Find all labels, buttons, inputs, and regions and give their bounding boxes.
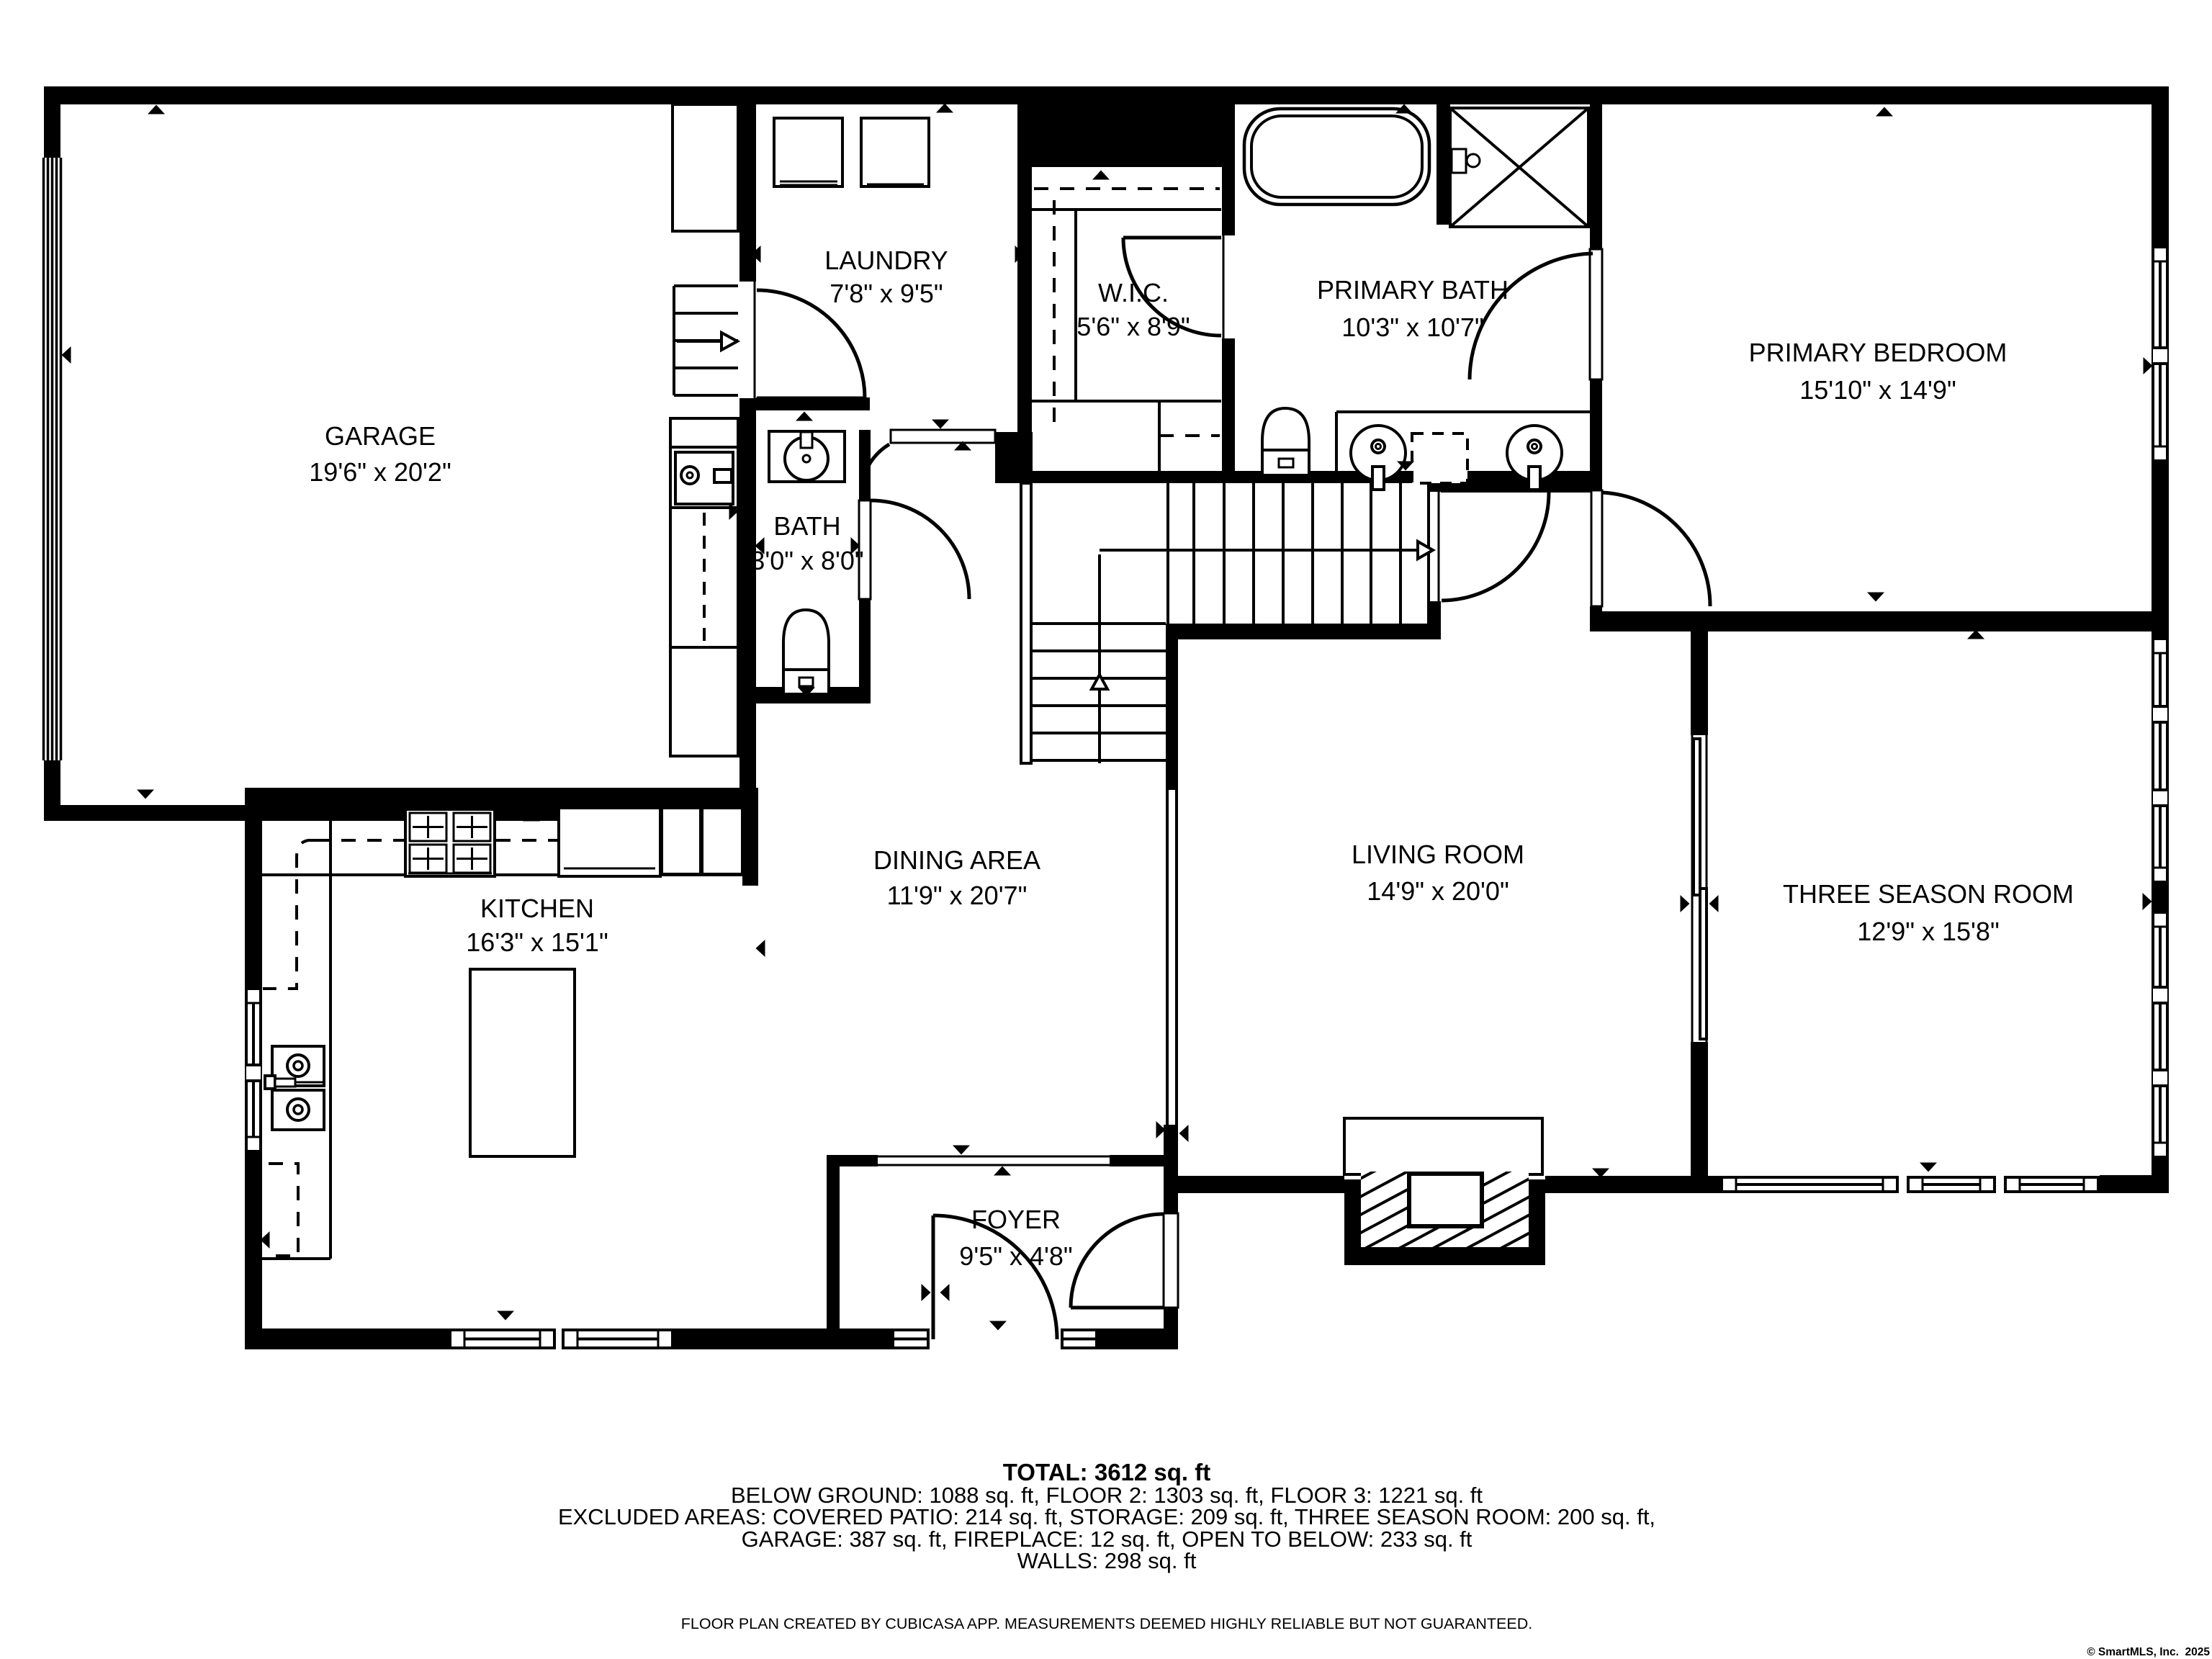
svg-text:19'6" x 20'2": 19'6" x 20'2" — [309, 457, 451, 487]
svg-text:14'9" x 20'0": 14'9" x 20'0" — [1367, 876, 1509, 906]
svg-text:12'9" x 15'8": 12'9" x 15'8" — [1857, 917, 1999, 946]
svg-text:FLOOR PLAN CREATED BY CUBICASA: FLOOR PLAN CREATED BY CUBICASA APP. MEAS… — [681, 1615, 1532, 1632]
svg-text:KITCHEN: KITCHEN — [480, 894, 594, 923]
svg-text:EXCLUDED AREAS: COVERED PATIO:: EXCLUDED AREAS: COVERED PATIO: 214 sq. f… — [558, 1504, 1655, 1529]
svg-text:GARAGE: GARAGE — [325, 421, 436, 451]
svg-text:9'5" x 4'8": 9'5" x 4'8" — [959, 1241, 1072, 1271]
svg-text:16'3" x 15'1": 16'3" x 15'1" — [466, 927, 608, 957]
svg-text:THREE SEASON ROOM: THREE SEASON ROOM — [1783, 879, 2074, 909]
svg-text:LIVING ROOM: LIVING ROOM — [1352, 840, 1524, 869]
svg-text:LAUNDRY: LAUNDRY — [824, 246, 948, 275]
svg-text:PRIMARY BEDROOM: PRIMARY BEDROOM — [1749, 338, 2008, 367]
svg-text:3'0" x 8'0": 3'0" x 8'0" — [750, 546, 863, 575]
svg-text:© SmartMLS, Inc. 2025: © SmartMLS, Inc. 2025 — [2087, 1646, 2210, 1658]
svg-text:10'3" x 10'7": 10'3" x 10'7" — [1341, 313, 1483, 342]
svg-text:DINING AREA: DINING AREA — [873, 845, 1040, 875]
svg-text:PRIMARY BATH: PRIMARY BATH — [1317, 275, 1509, 305]
svg-text:WALLS: 298 sq. ft: WALLS: 298 sq. ft — [1017, 1548, 1197, 1573]
svg-text:5'6" x 8'9": 5'6" x 8'9" — [1076, 312, 1190, 341]
svg-text:7'8" x 9'5": 7'8" x 9'5" — [829, 279, 943, 308]
svg-text:FOYER: FOYER — [971, 1205, 1061, 1234]
svg-text:11'9" x 20'7": 11'9" x 20'7" — [887, 881, 1028, 910]
svg-text:15'10" x 14'9": 15'10" x 14'9" — [1799, 375, 1956, 405]
svg-text:TOTAL: 3612 sq. ft: TOTAL: 3612 sq. ft — [1003, 1459, 1211, 1485]
svg-text:BATH: BATH — [773, 511, 840, 541]
svg-text:W.I.C.: W.I.C. — [1098, 278, 1169, 307]
